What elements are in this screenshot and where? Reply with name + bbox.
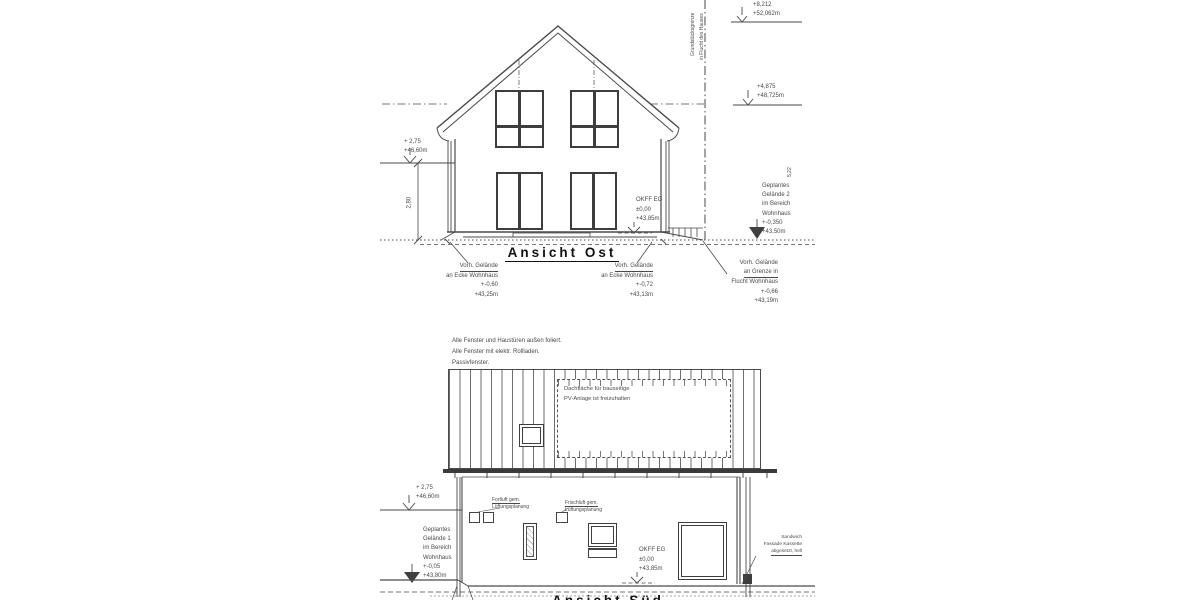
ost-door-lower-right (570, 172, 617, 230)
ost-ground-note-left: Vorh. Gelände an Ecke Wohnhaus +-0,60 +4… (428, 262, 498, 300)
ost-gutter-right (667, 128, 679, 141)
boundary-label-1: Grundstücksgrenze (690, 0, 696, 56)
exhaust-air-vent (469, 512, 480, 523)
sued-gelaende1-label: GeplantesGelände 1 im BereichWohnhaus +-… (423, 526, 452, 581)
ost-roof-outline (437, 26, 679, 128)
ridge-marker-arrow (737, 7, 747, 22)
sued-large-window (678, 522, 727, 580)
upper-marker-arrow (743, 90, 753, 105)
window-mullion (518, 174, 521, 228)
upper-level-label: +4,875+48,725m (757, 83, 784, 101)
ost-window-axes (519, 60, 594, 88)
window-transom (572, 125, 617, 128)
ost-right-dim: 5,22 (787, 153, 793, 177)
sued-general-notes: Alle Fenster und Haustüren außen foliert… (452, 336, 562, 369)
pv-seam-ticks-bottom (558, 451, 730, 457)
sued-narrow-window (523, 523, 537, 560)
ost-okff-label: OKFF EG±0,00+43,85m (636, 196, 662, 225)
ost-entry-pad (513, 233, 590, 237)
ost-roof-inner (443, 33, 673, 132)
exhaust-air-label: Fortluft gem. Lüftungsplanung (492, 497, 529, 510)
fresh-air-vent (556, 512, 568, 523)
sued-window-box (588, 548, 617, 558)
ost-wall-height-dim: 2,80 (406, 185, 415, 209)
sued-okff-label: OKFF EG±0,00+43,85m (639, 546, 665, 575)
sued-ground-step (458, 580, 468, 586)
skylight-inner-frame (522, 427, 541, 444)
ost-eave-level-label: + 2,75+46,60m (404, 138, 428, 156)
exhaust-air-vent (483, 512, 494, 523)
fresh-air-label: Frischluft gem. Lüftungsplanung (565, 500, 602, 513)
ost-ground-note-mid: Vorh. Gelände an Ecke Wohnhaus +-0,72 +4… (583, 262, 653, 300)
ost-window-upper-left (495, 90, 544, 148)
sued-skylight (519, 424, 544, 447)
window-mullion (518, 92, 521, 146)
sued-downspout-left (457, 477, 460, 597)
sued-level-arrow (403, 495, 415, 510)
ost-window-upper-right (570, 90, 619, 148)
boundary-label-2: in Flucht des Hauses (699, 0, 705, 60)
window-inner-frame (681, 525, 724, 577)
ost-ground-note-right: Vorh. Gelände an Grenze in Flucht Wohnha… (708, 259, 778, 306)
ost-title: Ansicht Ost (505, 245, 619, 262)
ost-gutter-left (437, 128, 449, 141)
facade-note: Sandwich Fassade Kassette abgesetzt, hel… (750, 535, 802, 556)
window-inner-frame (591, 526, 614, 544)
sued-bottom-leaders (452, 586, 473, 600)
pv-note: Dachfläche für bauseitigePV-Anlage ist f… (564, 384, 630, 404)
sued-title: Ansicht Süd (548, 593, 668, 600)
sued-gelaende1-arrow (404, 572, 420, 583)
ost-gelaende2-label: GeplantesGelände 2 im BereichWohnhaus +-… (762, 182, 791, 237)
ost-door-lower-left (496, 172, 543, 230)
sued-eave-level-label: + 2,75+46,60m (416, 484, 440, 502)
ost-hatch (668, 228, 703, 237)
architectural-drawing-sheet: +8,212+52,062m +4,875+48,725m + 2,75+46,… (0, 0, 1200, 600)
window-mullion (592, 174, 595, 228)
ost-walls (455, 139, 661, 232)
ridge-level-label: +8,212+52,062m (753, 1, 780, 19)
window-transom (497, 125, 542, 128)
sued-small-window (588, 523, 617, 547)
window-mullion (593, 92, 596, 146)
obscured-glass (526, 526, 534, 557)
